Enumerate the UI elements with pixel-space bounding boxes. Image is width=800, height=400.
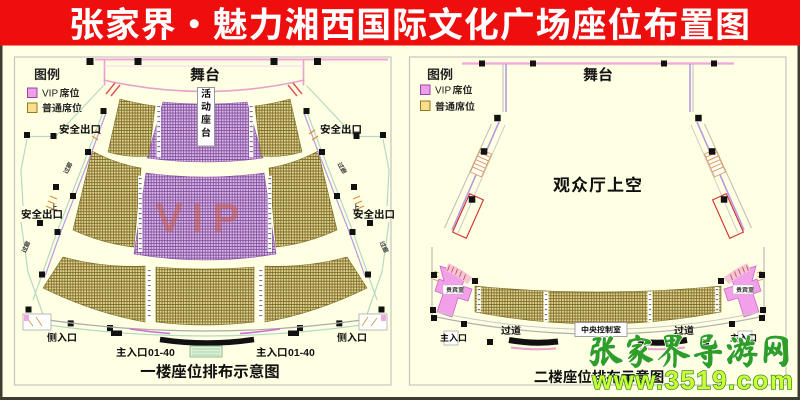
svg-text:www.3519.com: www.3519.com: [591, 365, 794, 395]
svg-text:VIP: VIP: [42, 89, 58, 100]
svg-text:01-40: 01-40: [288, 347, 315, 359]
svg-text:01-40: 01-40: [148, 347, 175, 359]
svg-text:VIP: VIP: [155, 195, 248, 241]
svg-text:VIP: VIP: [435, 86, 451, 97]
